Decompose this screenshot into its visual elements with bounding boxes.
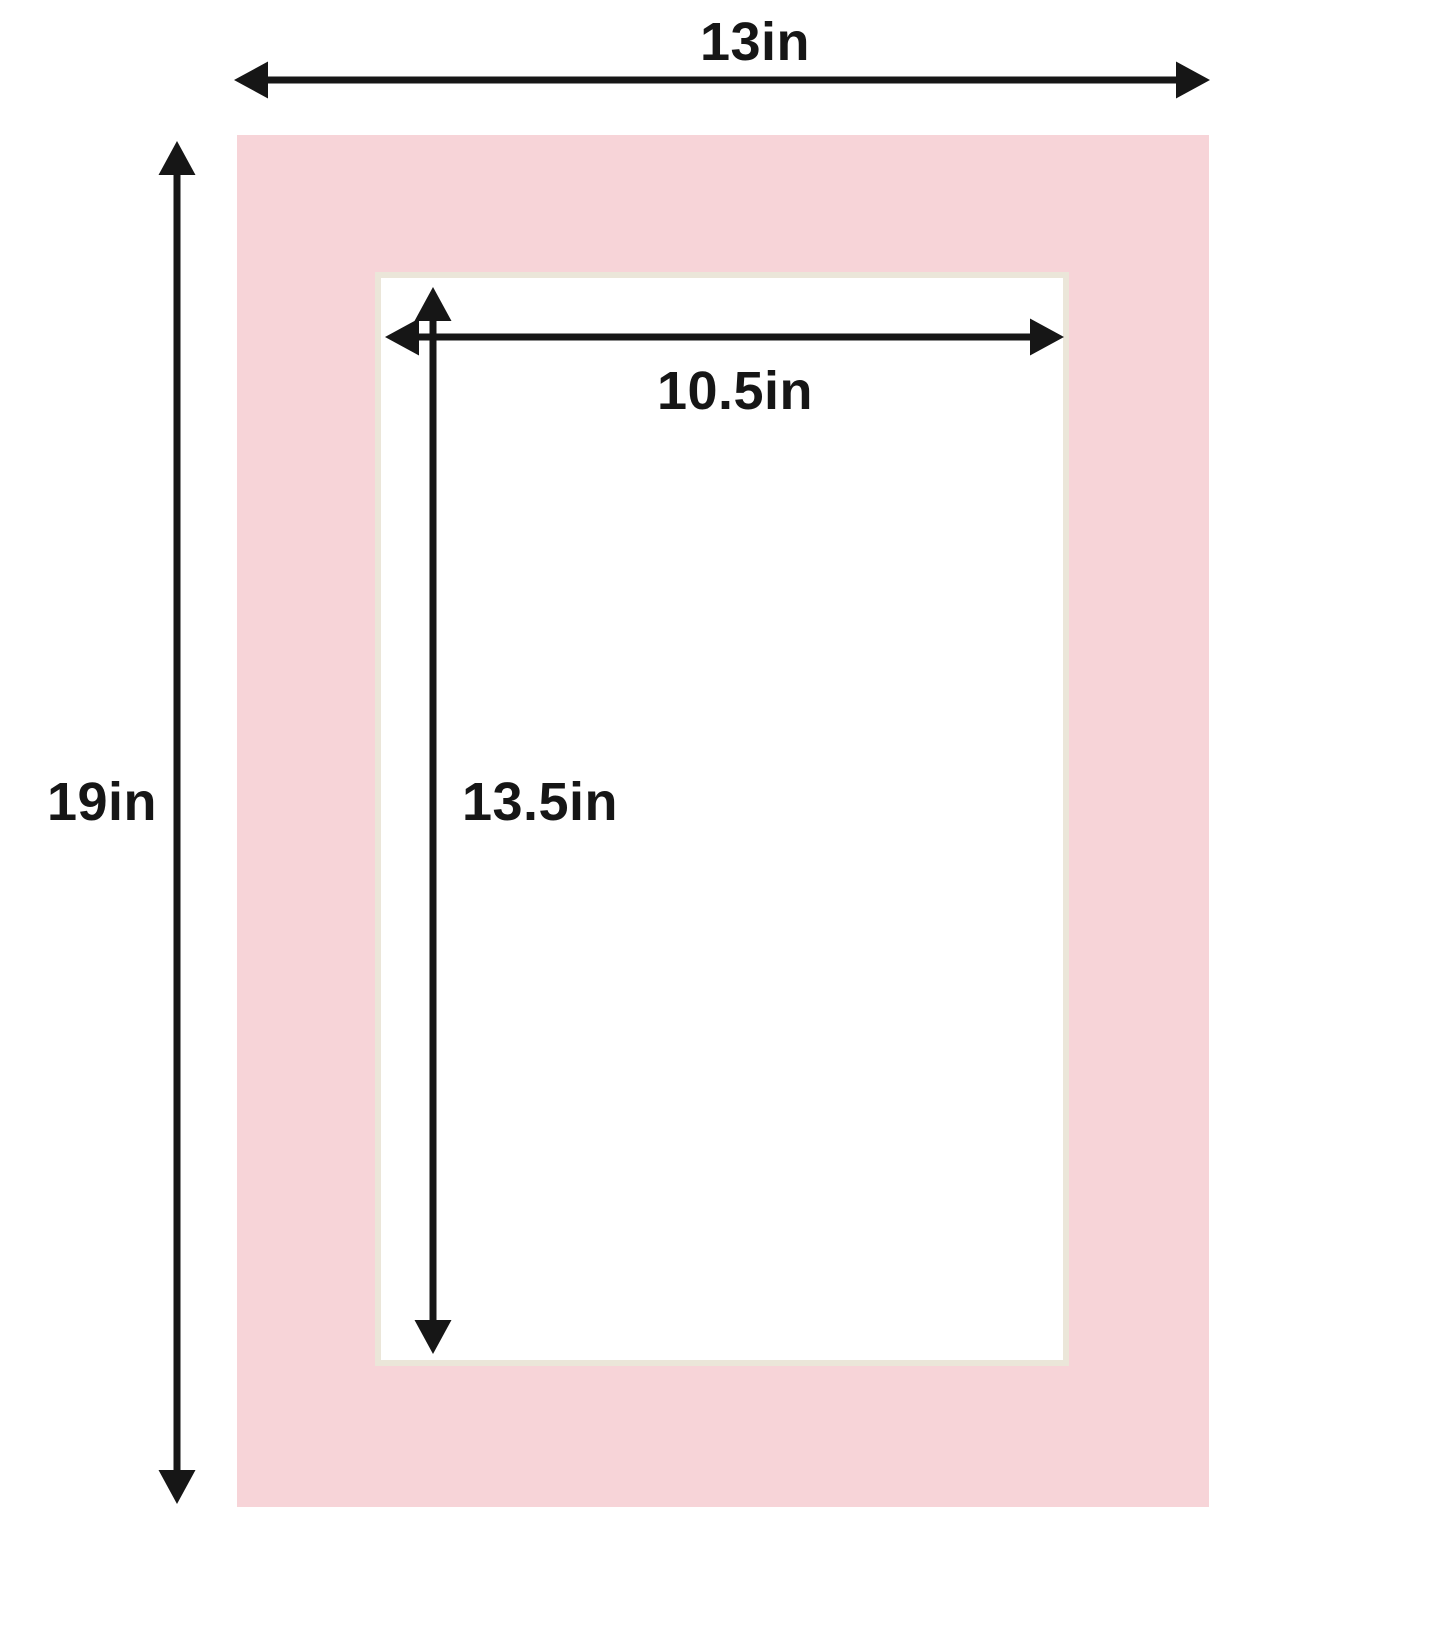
- mat-dimension-diagram: 13in 19in 10.5in 13.5in: [0, 0, 1445, 1645]
- outer-width-label: 13in: [700, 15, 810, 69]
- opening-height-label: 13.5in: [462, 775, 618, 829]
- outer-height-label: 19in: [47, 775, 157, 829]
- opening-height-arrow-icon: [413, 286, 453, 1355]
- outer-height-arrow-icon: [157, 140, 197, 1505]
- opening-width-label: 10.5in: [657, 364, 813, 418]
- opening-width-arrow-icon: [384, 317, 1065, 357]
